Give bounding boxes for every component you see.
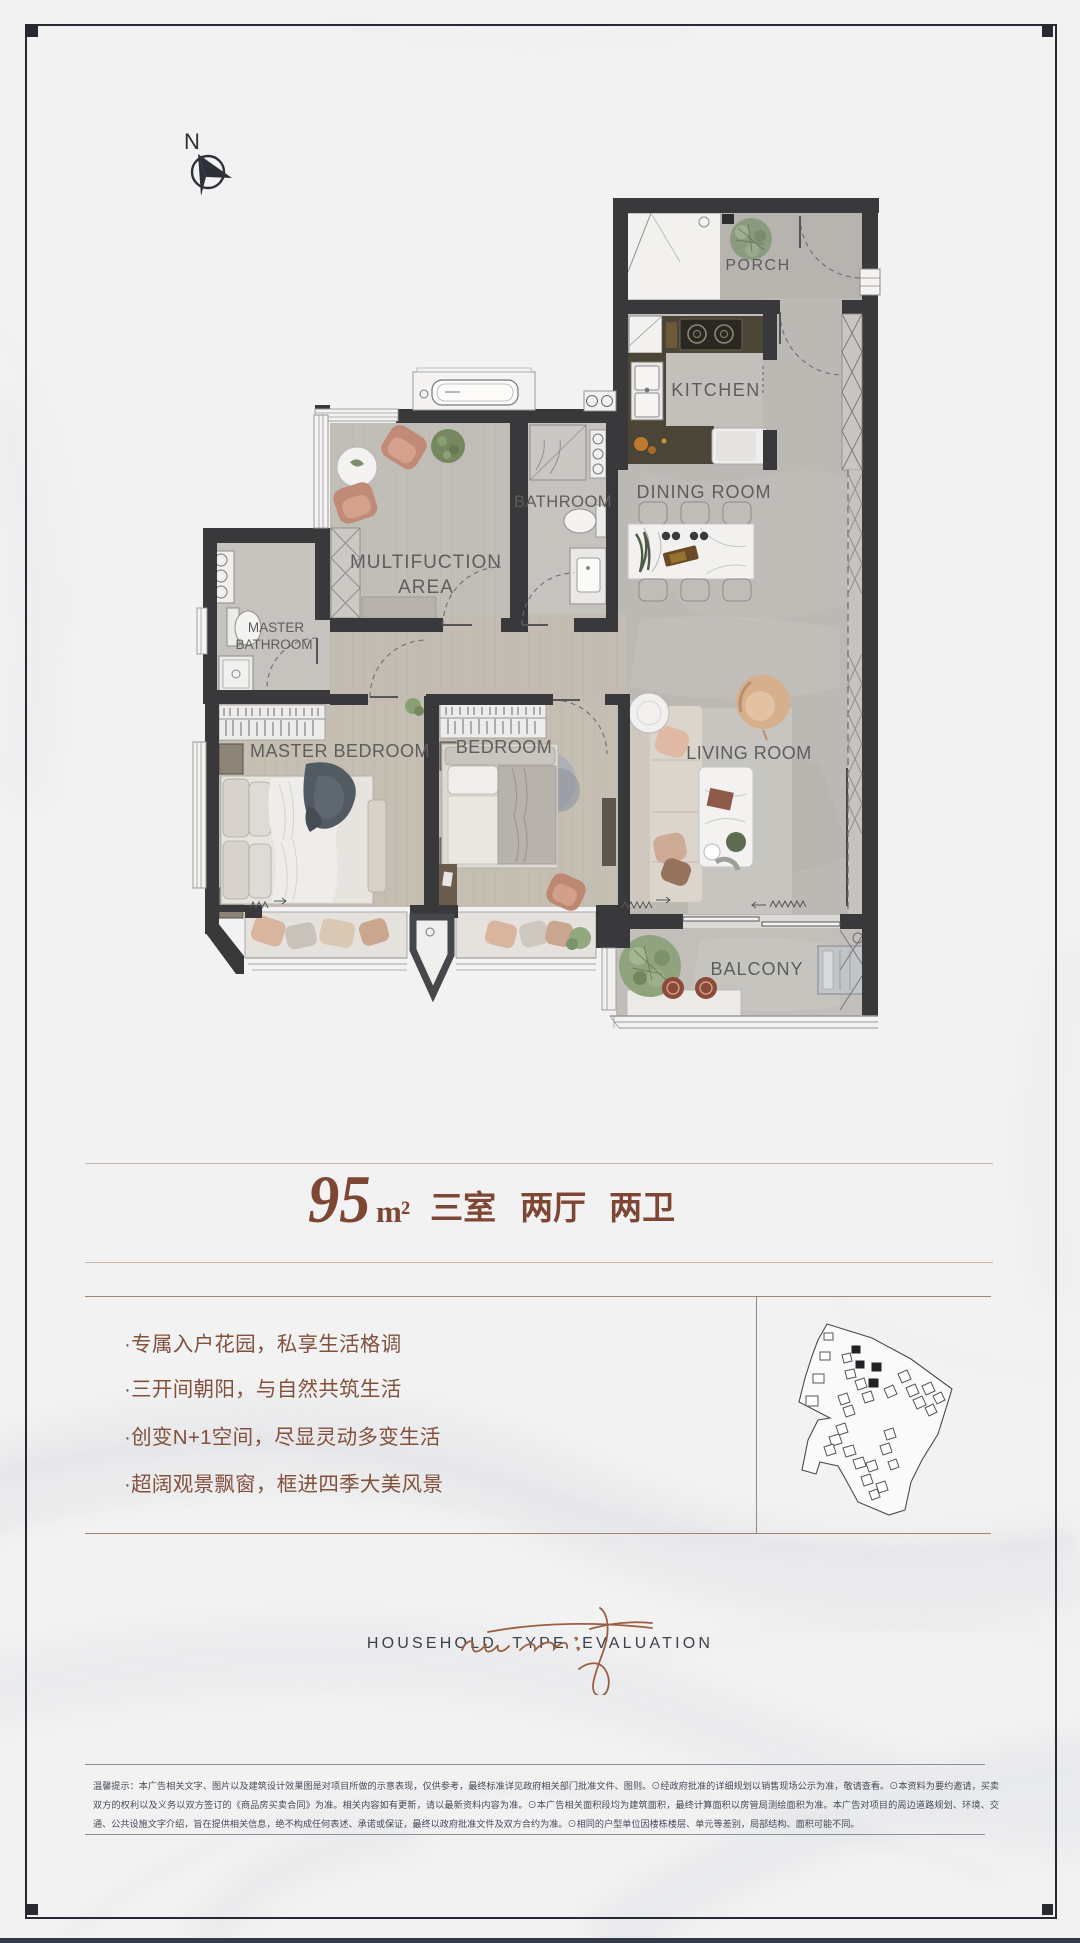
svg-text:BALCONY: BALCONY (710, 959, 803, 979)
svg-text:AREA: AREA (398, 577, 454, 598)
svg-text:KITCHEN: KITCHEN (671, 380, 761, 400)
svg-text:DINING ROOM: DINING ROOM (637, 482, 772, 502)
svg-text:MULTIFUCTION: MULTIFUCTION (350, 552, 502, 573)
svg-text:MASTER BEDROOM: MASTER BEDROOM (250, 741, 430, 761)
svg-text:BATHROOM: BATHROOM (236, 637, 313, 652)
svg-text:LIVING ROOM: LIVING ROOM (686, 743, 812, 763)
svg-text:N: N (184, 129, 200, 154)
svg-text:PORCH: PORCH (725, 257, 790, 274)
svg-text:BEDROOM: BEDROOM (456, 737, 553, 757)
svg-text:BATHROOM: BATHROOM (514, 493, 612, 511)
svg-text:MASTER: MASTER (248, 620, 305, 635)
